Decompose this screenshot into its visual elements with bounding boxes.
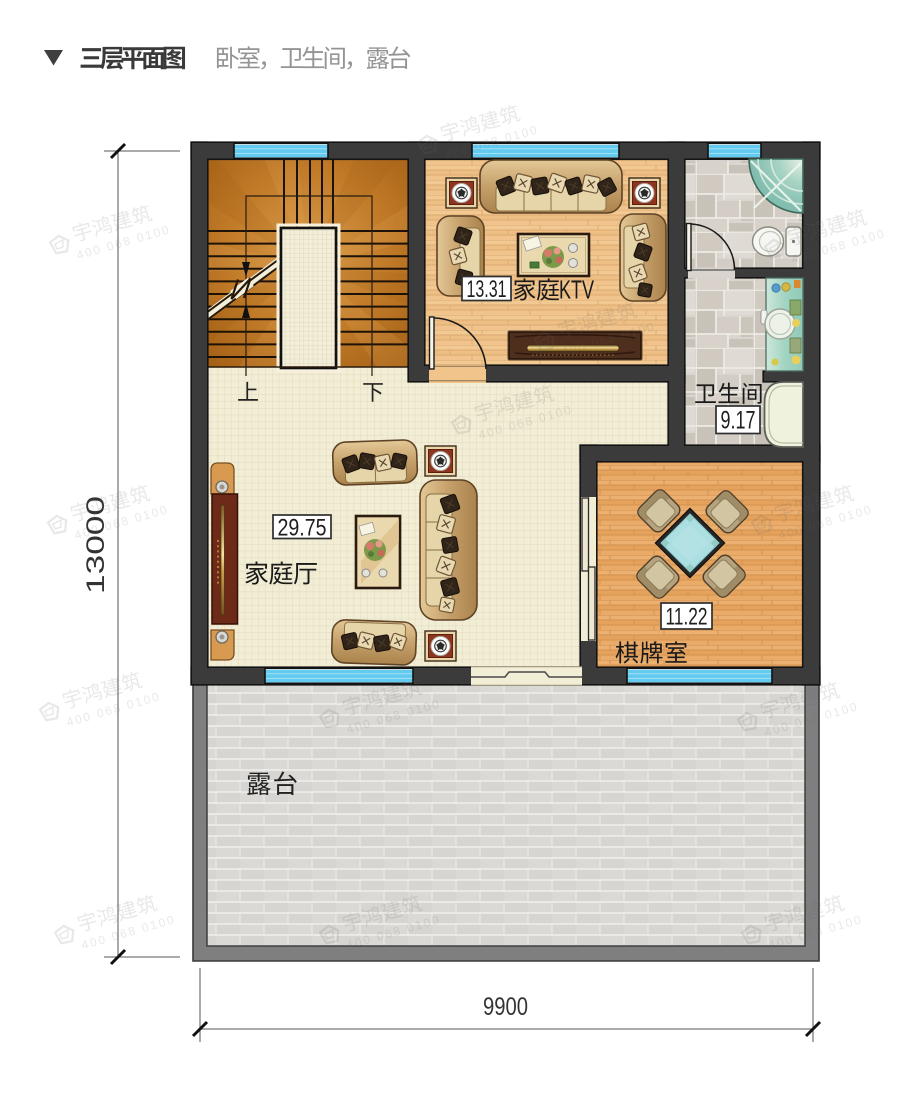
svg-text:9900: 9900	[483, 993, 528, 1021]
svg-text:KTV: KTV	[559, 275, 594, 305]
svg-text:13.31: 13.31	[467, 276, 507, 303]
svg-text:29.75: 29.75	[278, 514, 327, 541]
svg-text:9.17: 9.17	[721, 407, 756, 435]
svg-text:13000: 13000	[82, 496, 110, 594]
svg-text:11.22: 11.22	[666, 604, 708, 631]
